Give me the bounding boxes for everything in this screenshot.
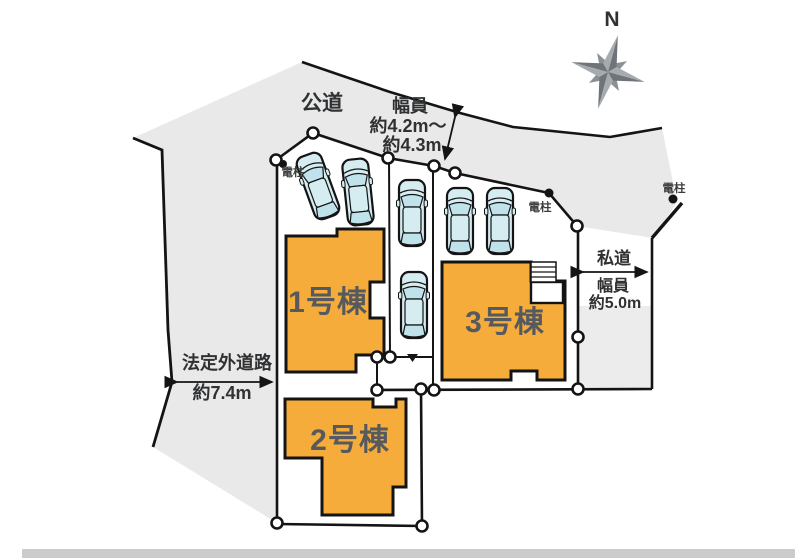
utility-pole-dot	[545, 189, 554, 198]
site-plan-svg: N 公道 幅員 約4.2m〜 約4.3m 電柱 電柱 電柱 私道 幅員 約5.0…	[0, 0, 800, 559]
unofficial-road-label: 法定外道路	[182, 352, 273, 373]
building-2-label: 2号棟	[310, 424, 390, 457]
public-road-width-title: 幅員	[392, 95, 428, 116]
public-road-width-line1: 約4.2m〜	[369, 115, 446, 136]
site-plan: N 公道 幅員 約4.2m〜 約4.3m 電柱 電柱 電柱 私道 幅員 約5.0…	[0, 0, 800, 559]
utility-pole-label-2: 電柱	[529, 200, 552, 214]
lot-south-boundary	[277, 524, 422, 526]
building-3-stairs-icon	[531, 262, 556, 282]
car-icon	[339, 158, 377, 227]
private-road-width-value: 約5.0m	[589, 293, 641, 312]
utility-pole-label-1: 電柱	[282, 165, 305, 179]
parking-divider-left	[389, 159, 390, 357]
private-road-label: 私道	[597, 248, 631, 268]
compass-north-label: N	[604, 8, 619, 31]
private-road-width-title: 幅員	[597, 276, 629, 295]
car-icon	[485, 188, 516, 254]
car-icon	[397, 180, 428, 246]
building-3-label: 3号棟	[465, 306, 545, 339]
building-3-entrance-notch	[531, 282, 563, 303]
car-icon	[292, 150, 344, 223]
compass-rose-icon: N	[561, 8, 654, 119]
neighbor-parcel-area	[579, 306, 652, 388]
building-1-label: 1号棟	[288, 286, 368, 319]
lot2-east-boundary	[421, 389, 422, 526]
public-road-width-line2: 約4.3m	[382, 134, 441, 155]
car-icon	[445, 188, 476, 254]
building-2-footprint	[285, 399, 406, 515]
utility-pole-label-3: 電柱	[663, 181, 686, 195]
bottom-bar	[22, 549, 795, 558]
unofficial-road-width-value: 約7.4m	[192, 382, 251, 403]
public-road-label: 公道	[301, 91, 343, 115]
utility-pole-dot	[669, 195, 678, 204]
car-icon	[399, 272, 430, 338]
